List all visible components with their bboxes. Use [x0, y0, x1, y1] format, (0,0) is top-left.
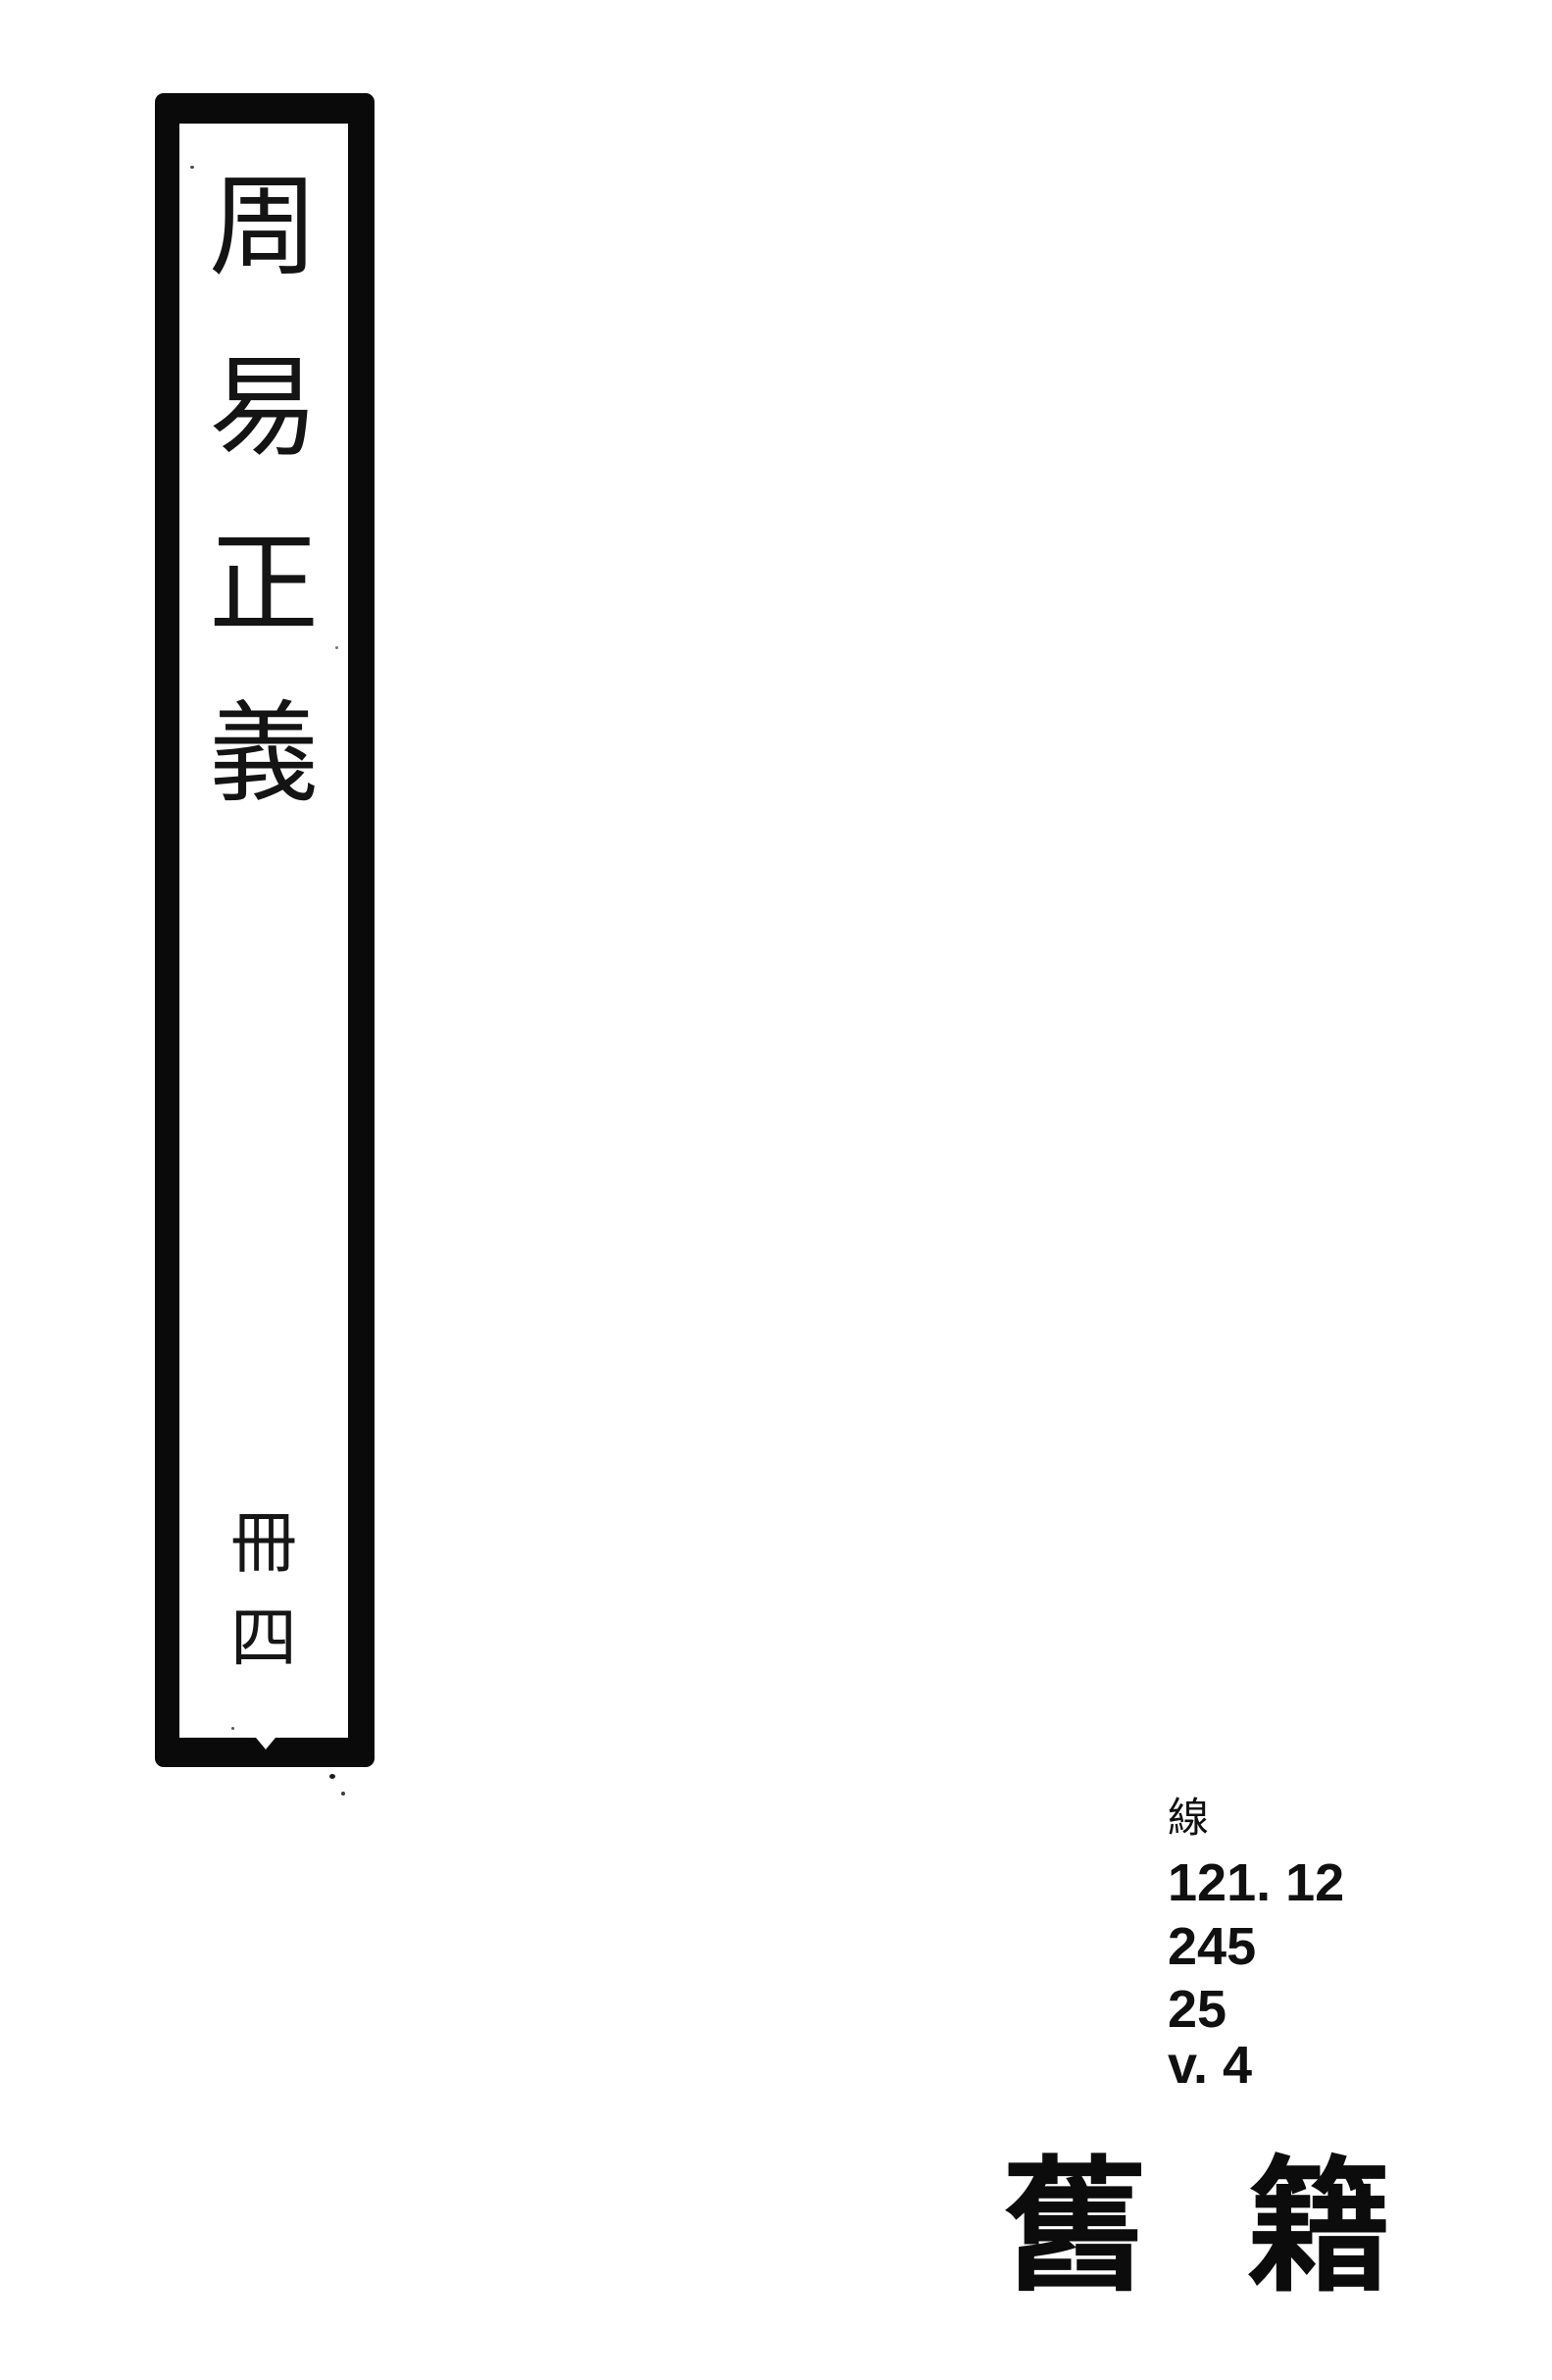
- collection-mark-char-2: 籍: [1247, 2153, 1392, 2299]
- call-number-line-2: 245: [1168, 1920, 1344, 1973]
- scan-speck: [341, 1792, 345, 1796]
- call-number-line-4: v. 4: [1168, 2039, 1344, 2092]
- spine-title-char-2: 易: [179, 353, 348, 463]
- call-number-line-1: 121. 12: [1168, 1856, 1344, 1909]
- scan-speck: [329, 1774, 335, 1779]
- spine-label-inner: 周 易 正 義 冊 四: [179, 124, 348, 1738]
- border-notch-artifact: [256, 1738, 275, 1749]
- volume-char-1: 冊: [179, 1511, 348, 1578]
- volume-char-2: 四: [179, 1606, 348, 1673]
- call-number-prefix-char: 線: [1168, 1798, 1344, 1839]
- scan-speck: [190, 166, 194, 169]
- scan-speck: [335, 646, 338, 649]
- scanned-book-cover-page: 周 易 正 義 冊 四 線 121. 12 245 25 v. 4 舊 籍: [0, 0, 1552, 2380]
- spine-title-char-1: 周: [179, 173, 348, 282]
- spine-title-char-3: 正: [179, 530, 348, 639]
- collection-mark-char-1: 舊: [1002, 2153, 1147, 2299]
- spine-label-box: 周 易 正 義 冊 四: [155, 93, 375, 1767]
- collection-mark: 舊 籍: [1002, 2153, 1392, 2299]
- spine-title-char-4: 義: [179, 699, 348, 809]
- call-number-line-3: 25: [1168, 1983, 1344, 2036]
- scan-speck: [231, 1727, 234, 1730]
- call-number-block: 線 121. 12 245 25 v. 4: [1168, 1798, 1344, 2092]
